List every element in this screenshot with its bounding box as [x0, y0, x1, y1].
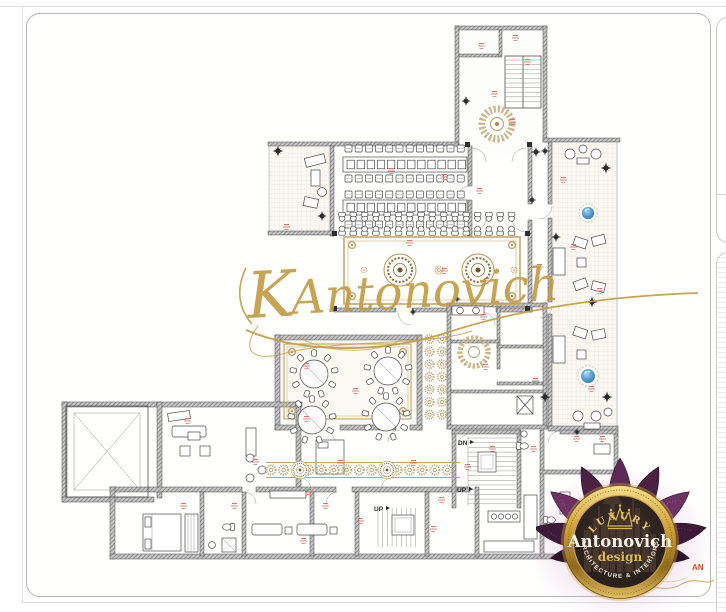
- label-up-service: UP: [374, 506, 384, 513]
- company-logo: LUXURY Antonovich · design · ARCHITECTUR…: [536, 448, 726, 612]
- label-up-main: UP: [457, 487, 467, 494]
- screenshot-root: DN UP UP AN K Antonovich: [0, 0, 726, 612]
- label-dn: DN: [458, 440, 468, 447]
- logo-design-text: · design ·: [589, 550, 650, 564]
- logo-badge: LUXURY Antonovich · design · ARCHITECTUR…: [561, 483, 679, 601]
- watermark-name: Antonovich: [286, 257, 561, 326]
